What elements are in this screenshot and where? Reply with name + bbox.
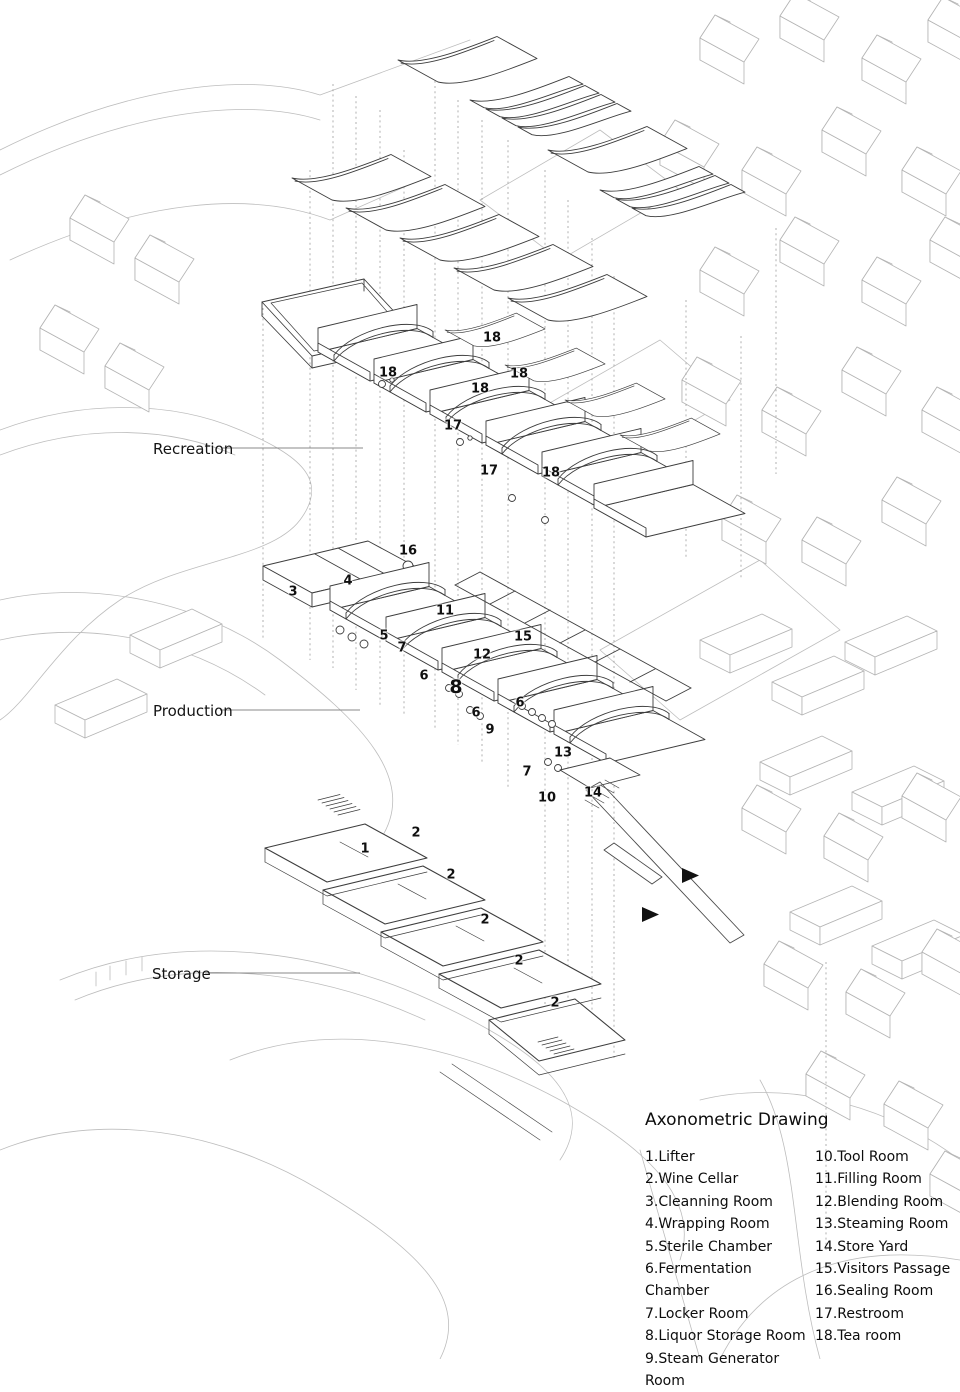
- legend-item: 2.Wine Cellar: [645, 1168, 815, 1190]
- storage-level: [265, 795, 625, 1076]
- room-number-marker: 14: [584, 786, 602, 801]
- room-number-marker: 12: [473, 648, 491, 663]
- section-label-production: Production: [153, 702, 233, 720]
- room-number-marker: 15: [514, 630, 532, 645]
- room-number-marker: 7: [522, 765, 531, 780]
- legend: Axonometric Drawing 1.Lifter 2.Wine Cell…: [645, 1110, 960, 1392]
- room-number-marker: 18: [471, 382, 489, 397]
- room-number-marker: 3: [288, 585, 297, 600]
- direction-arrow-icon: [642, 907, 659, 922]
- room-number-marker: 2: [514, 954, 523, 969]
- legend-item: 3.Cleanning Room: [645, 1191, 815, 1213]
- legend-column-2: 10.Tool Room 11.Filling Room 12.Blending…: [815, 1146, 950, 1392]
- legend-item: 10.Tool Room: [815, 1146, 950, 1168]
- room-number-marker: 7: [397, 641, 406, 656]
- room-number-marker: 18: [483, 331, 501, 346]
- legend-item: 11.Filling Room: [815, 1168, 950, 1190]
- legend-item: 7.Locker Room: [645, 1303, 815, 1325]
- room-number-marker: 18: [542, 466, 560, 481]
- legend-item: 6.Fermentation Chamber: [645, 1258, 815, 1303]
- room-number-marker: 8: [449, 676, 462, 698]
- legend-item: 9.Steam Generator Room: [645, 1348, 815, 1392]
- section-label-storage: Storage: [152, 965, 211, 983]
- room-number-marker: 6: [515, 696, 524, 711]
- legend-item: 1.Lifter: [645, 1146, 815, 1168]
- room-number-marker: 18: [379, 366, 397, 381]
- room-number-marker: 1: [360, 842, 369, 857]
- room-number-marker: 4: [343, 574, 352, 589]
- legend-item: 15.Visitors Passage: [815, 1258, 950, 1280]
- room-number-marker: 5: [379, 629, 388, 644]
- room-number-marker: 9: [485, 723, 494, 738]
- legend-item: 14.Store Yard: [815, 1236, 950, 1258]
- legend-title: Axonometric Drawing: [645, 1110, 960, 1130]
- recreation-level: [262, 279, 745, 537]
- room-number-marker: 18: [510, 367, 528, 382]
- room-number-marker: 13: [554, 746, 572, 761]
- room-number-marker: 17: [444, 419, 462, 434]
- axonometric-drawing-figure: Recreation Production Storage 18 18 18 1…: [0, 0, 960, 1359]
- roof-canopy-level: [292, 37, 745, 322]
- room-number-marker: 2: [480, 913, 489, 928]
- production-level: [263, 541, 705, 808]
- legend-item: 17.Restroom: [815, 1303, 950, 1325]
- room-number-marker: 16: [399, 544, 417, 559]
- legend-column-1: 1.Lifter 2.Wine Cellar 3.Cleanning Room …: [645, 1146, 815, 1392]
- legend-item: 16.Sealing Room: [815, 1280, 950, 1302]
- legend-item: 13.Steaming Room: [815, 1213, 950, 1235]
- legend-item: 4.Wrapping Room: [645, 1213, 815, 1235]
- room-number-marker: 6: [471, 706, 480, 721]
- room-number-marker: 10: [538, 791, 556, 806]
- room-number-marker: 2: [550, 996, 559, 1011]
- room-number-marker: 17: [480, 464, 498, 479]
- room-number-marker: 11: [436, 604, 454, 619]
- room-number-marker: 2: [446, 868, 455, 883]
- direction-arrow-icon: [682, 868, 699, 883]
- room-number-marker: 6: [419, 669, 428, 684]
- legend-item: 8.Liquor Storage Room: [645, 1325, 815, 1347]
- legend-item: 5.Sterile Chamber: [645, 1236, 815, 1258]
- section-label-recreation: Recreation: [153, 440, 233, 458]
- legend-item: 18.Tea room: [815, 1325, 950, 1347]
- room-number-marker: 2: [411, 826, 420, 841]
- legend-item: 12.Blending Room: [815, 1191, 950, 1213]
